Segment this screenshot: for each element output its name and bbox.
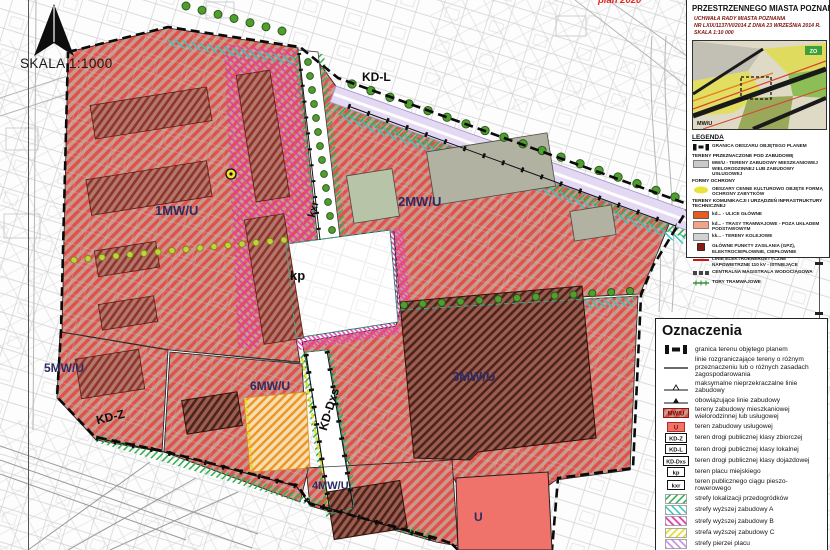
u-zone — [456, 472, 552, 550]
inset-legend-item: OBSZARY CENNE KULTUROWO OBJĘTE FORMĄ OCH… — [692, 186, 825, 197]
height-a-swatch — [662, 505, 690, 515]
inset-legend-item: GŁÓWNE PUNKTY ZASILANIA (GPZ), ELEKTROCI… — [692, 243, 825, 254]
svg-text:kxr: kxr — [672, 484, 681, 490]
kp-swatch: kp — [662, 467, 690, 477]
legend-item: KD-Z teren drogi publicznej klasy zbiorc… — [662, 433, 821, 443]
inset-legend-title: LEGENDA — [692, 134, 825, 141]
ordinance-text: UCHWAŁA RADY MIASTA POZNANIA NR LXIX/113… — [694, 16, 825, 37]
inset-legend-item: kd... - TRASY TRAMWAJOWE - POZA UKŁADEM … — [692, 221, 825, 232]
title-block: PRZESTRZENNEGO MIASTA POZNANIA UCHWAŁA R… — [686, 0, 830, 258]
svg-text:KD-Dxs: KD-Dxs — [666, 459, 685, 465]
legend-item: maksymalne nieprzekraczalne linie zabudo… — [662, 380, 821, 395]
height-b-swatch — [662, 516, 690, 526]
zone-label-1mwu: 1MW/U — [155, 203, 198, 218]
legend-item: strefy lokalizacji przedogródków — [662, 494, 821, 504]
zone-label-4mwu: 4MW/U — [312, 480, 349, 492]
legend-item: kp teren placu miejskiego — [662, 467, 821, 477]
map-scale-label: SKALA 1:1000 — [20, 56, 113, 71]
water-tower-icon — [226, 169, 236, 179]
mandatory-building-line-icon — [662, 396, 690, 405]
north-arrow-icon — [28, 2, 80, 60]
tram-route-swatch — [692, 221, 709, 229]
zone-label-5mwu: 5MW/U — [44, 361, 84, 375]
svg-text:KD-Z: KD-Z — [669, 437, 683, 443]
mwu-gray-swatch — [692, 160, 709, 168]
legend-item: KD-L teren drogi publicznej klasy lokaln… — [662, 444, 821, 454]
front-garden-swatch — [662, 494, 690, 504]
inset-legend-heading: TERENY PRZEZNACZONE POD ZABUDOWĘ — [692, 154, 825, 159]
inset-legend-item: TORY TRAMWAJOWE — [692, 279, 825, 287]
legend-item: strefy wyższej zabudowy B — [662, 516, 821, 526]
legend-box: Oznaczenia granica terenu objętego plane… — [655, 318, 828, 550]
svg-text:ZO: ZO — [810, 49, 818, 55]
legend-item: strefy wyższej zabudowy A — [662, 505, 821, 515]
plan-sheet: 1MW/U 2MW/U 3MW/U 4MW/U 5MW/U 6MW/U U kp… — [0, 0, 830, 550]
heritage-yellow-swatch — [692, 186, 709, 194]
u-swatch: U — [662, 422, 690, 432]
inset-legend-item: GRANICA OBSZARU OBJĘTEGO PLANEM — [692, 143, 825, 151]
rail-area-swatch — [692, 233, 709, 241]
inset-legend-item: kk... - TERENY KOLEJOWE — [692, 233, 825, 241]
kdl-swatch: KD-L — [662, 444, 690, 454]
inset-legend-heading: FORMY OCHRONY — [692, 179, 825, 184]
legend-item: linie rozgraniczające tereny o różnym pr… — [662, 356, 821, 378]
ordinance-line3: SKALA 1:10 000 — [694, 30, 734, 36]
svg-text:kp: kp — [673, 470, 680, 476]
kdz-swatch: KD-Z — [662, 433, 690, 443]
ordinance-line2: NR LXIX/1137/VI/2014 Z DNIA 23 WRZEŚNIA … — [694, 23, 821, 29]
height-c-swatch — [662, 528, 690, 538]
legend-item: kxr teren publicznego ciągu pieszo-rower… — [662, 478, 821, 493]
title-block-heading: PRZESTRZENNEGO MIASTA POZNANIA — [692, 4, 825, 13]
watermark-text: plan 2020 — [598, 0, 641, 6]
legend-item: strefa wyższej zabudowy C — [662, 528, 821, 538]
kxr-swatch: kxr — [662, 480, 690, 490]
zone-label-2mwu: 2MW/U — [398, 194, 441, 209]
svg-text:U: U — [674, 426, 678, 432]
inset-legend-heading: TERENY KOMUNIKACJI I URZĄDZEŃ INFRASTRUK… — [692, 199, 825, 209]
zone-label-u: U — [474, 510, 483, 524]
tram-track-swatch — [692, 279, 709, 287]
inset-legend-item: LINIE ELEKTROENERGETYCZNE NAPOWIETRZNE 1… — [692, 256, 825, 267]
legend-item: KD-Dxs teren drogi publicznej klasy doja… — [662, 456, 821, 466]
mwu-swatch: MW/U — [662, 408, 690, 418]
label-kp: kp — [290, 268, 305, 283]
label-kdl: KD-L — [362, 70, 391, 84]
max-building-line-icon — [662, 383, 690, 392]
gpz-swatch — [692, 243, 709, 251]
dividing-line-icon — [662, 363, 690, 372]
legend-item: granica terenu objętego planem — [662, 344, 821, 355]
inset-legend-item: kd... - ULICE GŁÓWNE — [692, 211, 825, 219]
main-street-swatch — [692, 211, 709, 219]
plan-boundary-icon — [662, 344, 690, 355]
ordinance-line1: UCHWAŁA RADY MIASTA POZNANIA — [694, 16, 786, 22]
legend-title: Oznaczenia — [662, 323, 821, 339]
svg-text:KD-L: KD-L — [669, 448, 683, 454]
inset-map: ZO MW/U — [692, 40, 827, 130]
power-line-swatch — [692, 256, 709, 264]
inset-legend-item: CENTRALNA MAGISTRALA WODOCIĄGOWA — [692, 269, 825, 277]
height-zone-c-hatch — [244, 392, 310, 472]
legend-item: MW/U tereny zabudowy mieszkaniowej wielo… — [662, 406, 821, 421]
inset-mwu-label: MW/U — [697, 121, 712, 127]
zone-label-6mwu: 6MW/U — [250, 379, 290, 393]
water-main-swatch — [692, 269, 709, 277]
zone-label-3mwu: 3MW/U — [452, 369, 495, 384]
kddxs-swatch: KD-Dxs — [662, 456, 690, 466]
legend-item: strefy pierzei placu — [662, 539, 821, 549]
plaza-frontage-swatch — [662, 539, 690, 549]
boundary-swatch-icon — [692, 143, 709, 151]
inset-legend-item: MW/U - TERENY ZABUDOWY MIESZKANIOWEJ WIE… — [692, 160, 825, 177]
legend-item: U teren zabudowy usługowej — [662, 422, 821, 432]
legend-item: obowiązujące linie zabudowy — [662, 396, 821, 405]
svg-text:MW/U: MW/U — [668, 412, 685, 418]
